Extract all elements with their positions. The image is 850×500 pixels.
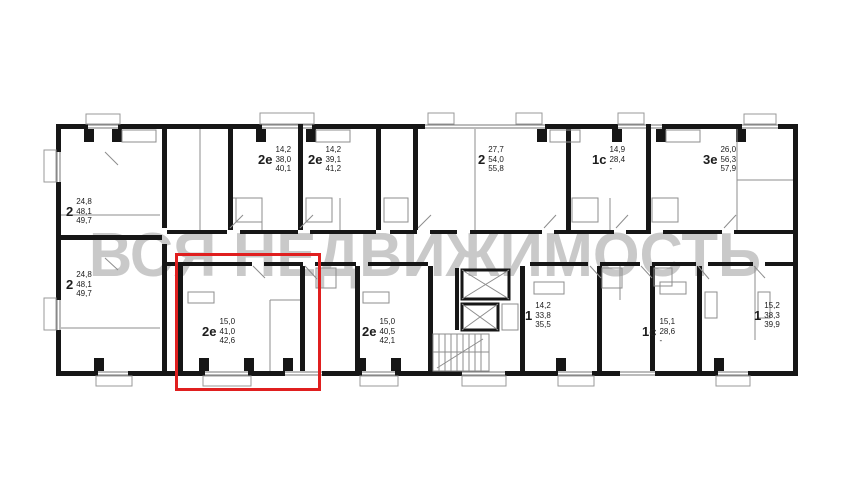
outer-walls <box>56 124 798 376</box>
apartment-areas: 15,1 28,6 - <box>659 317 675 346</box>
apartment-type: 3е <box>703 153 717 166</box>
apartment-label: 1с 15,1 28,6 - <box>642 317 675 346</box>
apartment-areas: 14,2 39,1 41,2 <box>325 145 341 174</box>
apartment-type: 2е <box>362 325 376 338</box>
apartment-type: 1с <box>592 153 606 166</box>
selected-apartment-outline[interactable] <box>175 253 321 391</box>
apartment-label: 2 27,7 54,0 55,8 <box>478 145 504 174</box>
apartment-areas: 27,7 54,0 55,8 <box>488 145 504 174</box>
interior-walls <box>61 124 793 371</box>
apartment-type: 2 <box>66 278 73 291</box>
apartment-areas: 24,8 48,1 49,7 <box>76 270 92 299</box>
apartment-type: 1 <box>525 309 532 322</box>
apartment-type: 2 <box>66 205 73 218</box>
apartment-label: 1 14,2 33,8 35,5 <box>525 301 551 330</box>
apartment-areas: 15,0 40,5 42,1 <box>379 317 395 346</box>
apartment-label: 2 24,8 48,1 49,7 <box>66 270 92 299</box>
floorplan-canvas: ВСЯ НЕДВИЖИМОСТЬ <box>0 0 850 500</box>
apartment-label: 2 24,8 48,1 49,7 <box>66 197 92 226</box>
apartment-type: 2 <box>478 153 485 166</box>
apartment-areas: 14,2 38,0 40,1 <box>275 145 291 174</box>
apartment-areas: 26,0 56,3 57,9 <box>720 145 736 174</box>
apartment-areas: 14,9 28,4 - <box>609 145 625 174</box>
apartment-label: 2е 14,2 38,0 40,1 <box>258 145 291 174</box>
apartment-type: 1 <box>754 309 761 322</box>
staircase <box>433 334 489 371</box>
apartment-type: 2е <box>308 153 322 166</box>
apartment-areas: 15,2 38,3 39,9 <box>764 301 780 330</box>
apartment-areas: 14,2 33,8 35,5 <box>535 301 551 330</box>
elevator-core <box>455 268 518 330</box>
apartment-type: 1с <box>642 325 656 338</box>
apartment-type: 2е <box>258 153 272 166</box>
apartment-label: 2е 15,0 40,5 42,1 <box>362 317 395 346</box>
apartment-label: 1 15,2 38,3 39,9 <box>754 301 780 330</box>
partitions <box>61 129 793 371</box>
apartment-areas: 24,8 48,1 49,7 <box>76 197 92 226</box>
apartment-label: 3е 26,0 56,3 57,9 <box>703 145 736 174</box>
floorplan-drawing <box>0 0 850 500</box>
apartment-label: 1с 14,9 28,4 - <box>592 145 625 174</box>
apartment-label: 2е 14,2 39,1 41,2 <box>308 145 341 174</box>
